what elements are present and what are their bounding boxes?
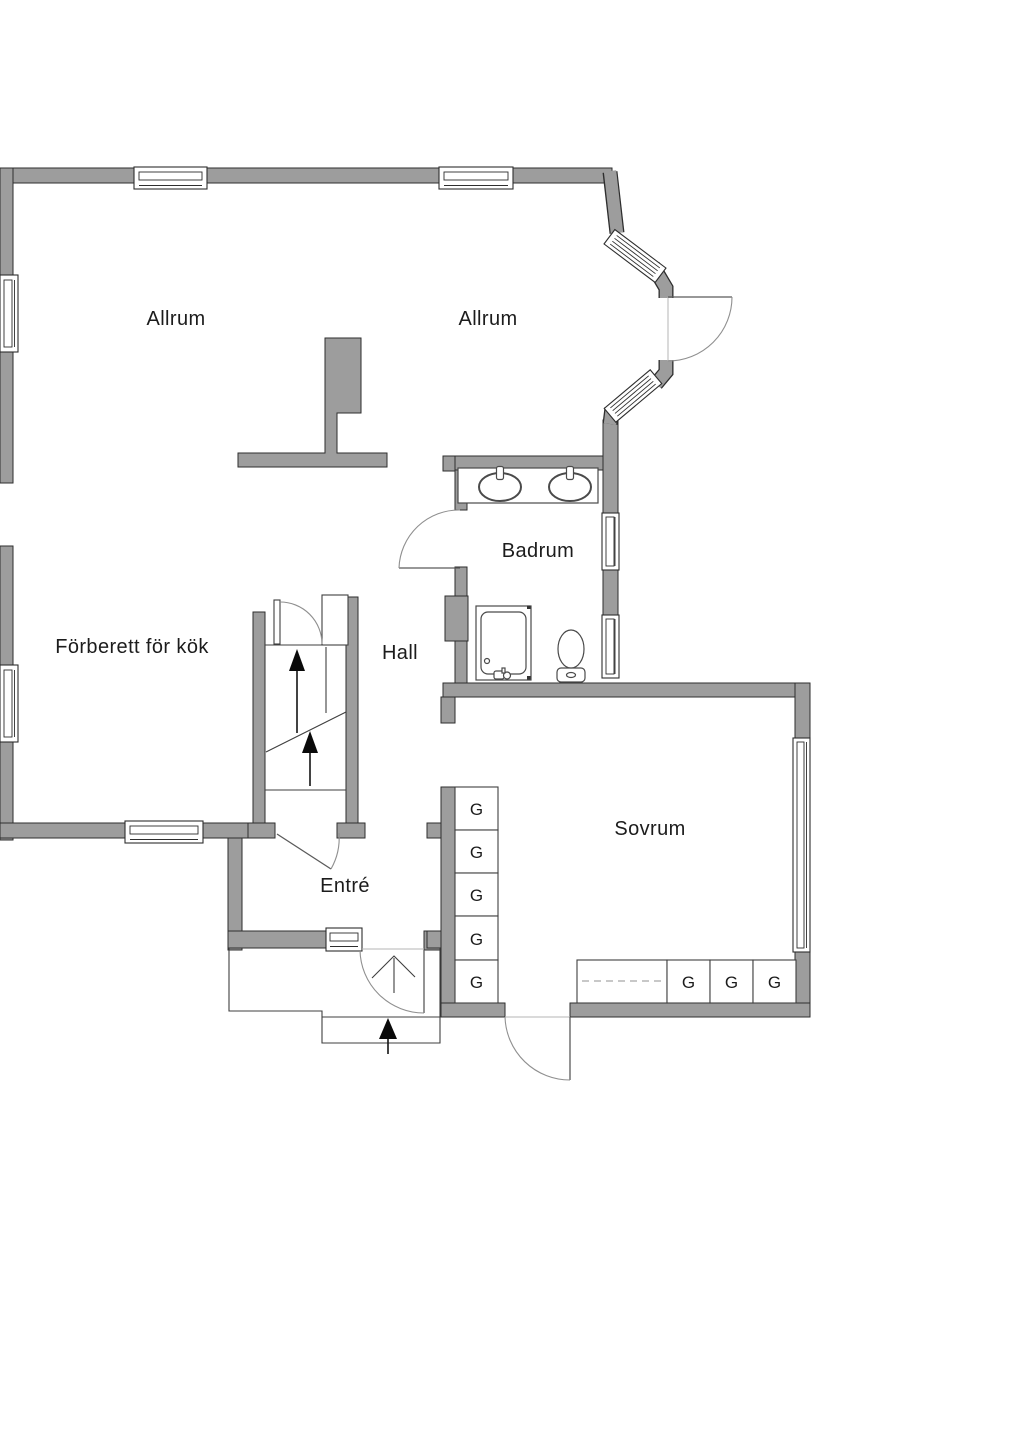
door-sovrum (505, 1017, 570, 1080)
shower-icon (476, 606, 531, 681)
room-labels: Allrum Allrum Badrum Förberett för kök H… (55, 308, 685, 897)
entrance-direction-arrow (372, 956, 415, 993)
wardrobe-label: G (470, 930, 483, 949)
wardrobe-label: G (470, 973, 483, 992)
floor-plan-page: G G G G G G G G (0, 0, 1024, 1448)
wall-entre-bottom (228, 931, 328, 948)
window-left-2 (0, 665, 18, 742)
wall-stair-left (253, 612, 265, 823)
porch (229, 948, 440, 1054)
porch-outline (229, 948, 440, 1043)
window-sovrum-east (793, 738, 810, 952)
wardrobe-label: G (725, 973, 738, 992)
room-label-allrum-left: Allrum (146, 308, 205, 330)
room-label-sovrum: Sovrum (614, 818, 685, 840)
entrance-step-arrow (379, 1018, 397, 1054)
floorplan-canvas: G G G G G G G G (0, 0, 1024, 1448)
room-label-hall: Hall (382, 642, 418, 664)
window-left-1 (0, 275, 18, 352)
window-bay-upper (604, 230, 666, 283)
wall-entre-pilaster-north (427, 823, 441, 838)
wall-top (0, 168, 612, 183)
room-label-forberett-for-kok: Förberett för kök (55, 636, 209, 658)
door-entre (277, 833, 339, 869)
wall-badrum-west-c (455, 641, 467, 683)
window-bay-lower (604, 370, 662, 422)
wall-stair-base-left (248, 823, 275, 838)
bathroom-fixtures (458, 467, 598, 683)
stair-up-arrow-2 (302, 731, 318, 786)
door-badrum (399, 510, 460, 568)
wall-badrum-east-b (603, 570, 618, 615)
wall-badrum-east-a (603, 420, 618, 513)
window-badrum-1 (602, 513, 619, 570)
stair-landing (322, 595, 348, 645)
window-top-1 (134, 167, 207, 189)
wardrobe-label: G (470, 800, 483, 819)
window-top-2 (439, 167, 513, 189)
window-badrum-2 (602, 615, 619, 678)
wall-hall-sovrum (441, 697, 455, 723)
chimney (238, 338, 387, 467)
room-label-allrum-right: Allrum (458, 308, 517, 330)
window-entre-south (326, 928, 362, 951)
toilet-icon (557, 630, 585, 682)
window-kitchen-south (125, 821, 203, 843)
room-label-entre: Entré (320, 875, 370, 897)
wall-stair-base-right (337, 823, 365, 838)
wall-badrum-west-b (455, 567, 467, 596)
wall-badrum-pilaster (445, 596, 468, 641)
wall-entre-pilaster-south (427, 931, 441, 948)
wall-sovrum-south-left (441, 1003, 505, 1017)
room-label-badrum: Badrum (502, 540, 574, 562)
door-stairs-top (274, 600, 322, 644)
wardrobe-label: G (470, 843, 483, 862)
stair-up-arrow-1 (289, 649, 305, 733)
vanity-counter (458, 467, 598, 504)
wardrobe-label: G (768, 973, 781, 992)
faucet-icon (567, 467, 574, 480)
wall-sovrum-west (441, 787, 455, 1017)
door-bay (668, 297, 732, 361)
wardrobe-label: G (682, 973, 695, 992)
walls (0, 168, 810, 1017)
wall-sovrum-east-a (795, 683, 810, 740)
wall-sovrum-north (443, 683, 798, 697)
faucet-icon (497, 467, 504, 480)
wall-sovrum-south-right (570, 1003, 810, 1017)
wardrobe-label: G (470, 886, 483, 905)
